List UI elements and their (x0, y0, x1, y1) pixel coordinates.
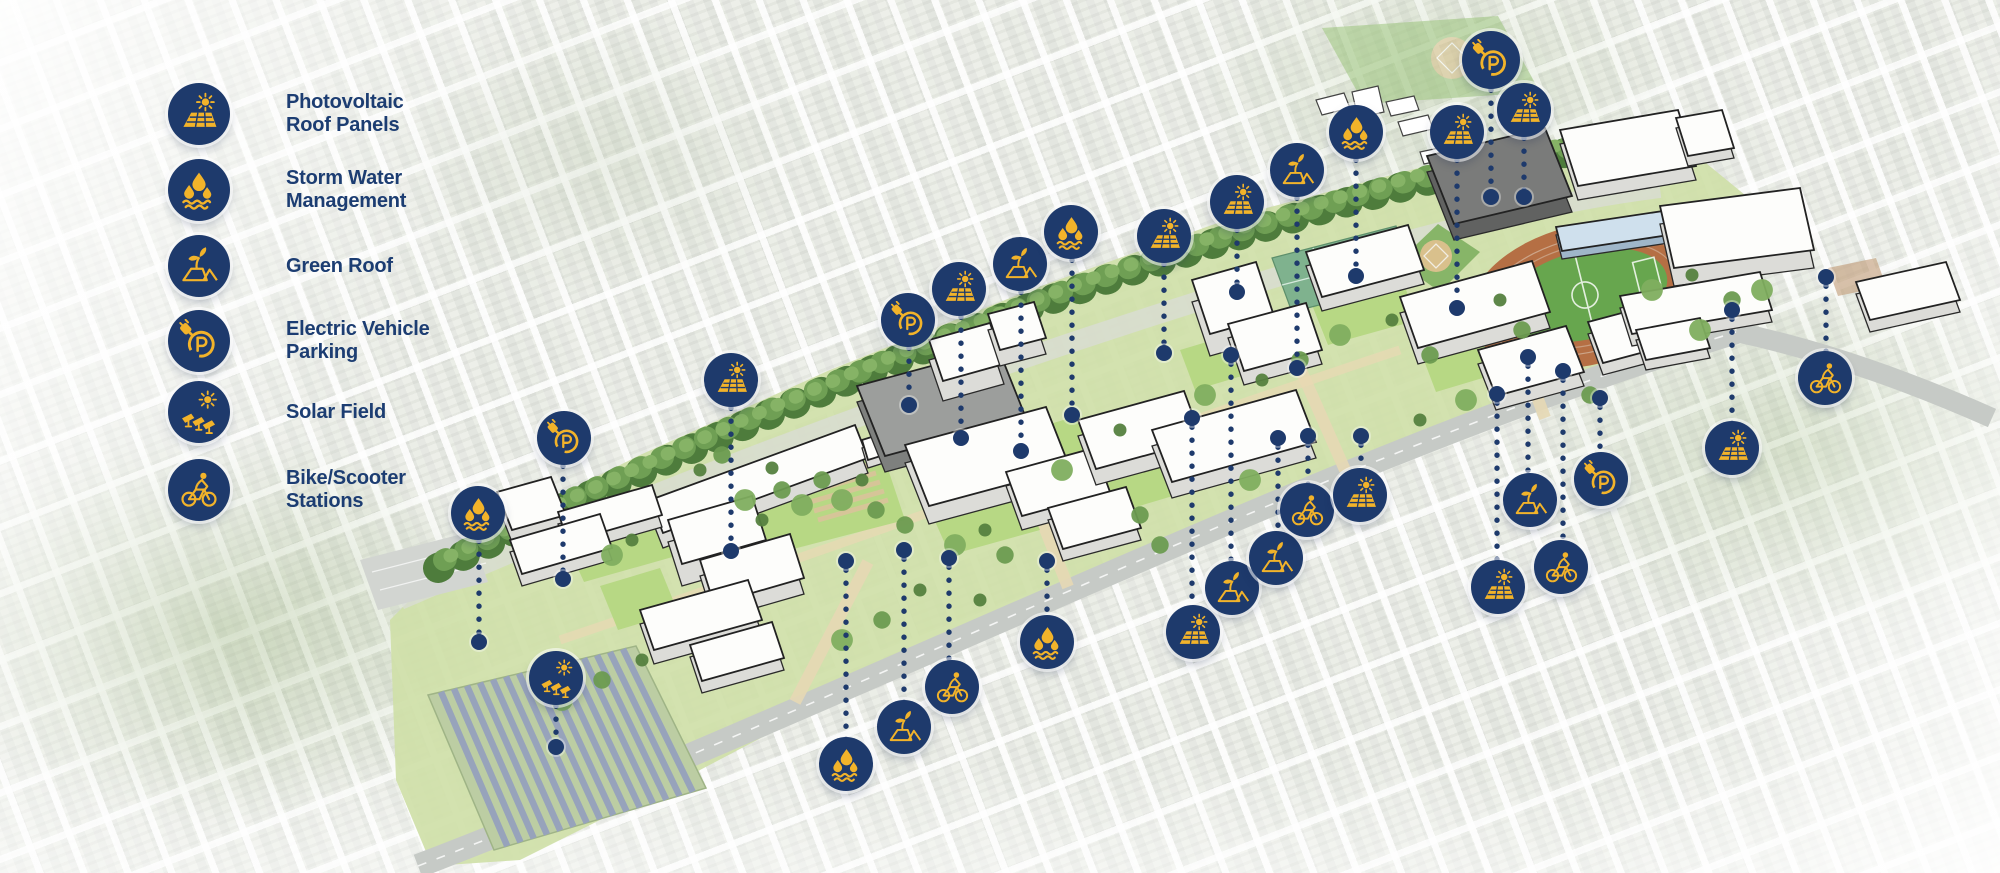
photovoltaic-icon (1341, 476, 1380, 515)
marker-connector (1044, 567, 1050, 617)
marker-connector (1560, 377, 1566, 542)
bike-scooter-icon (1542, 548, 1581, 587)
legend-label-line: Storm Water (286, 167, 406, 190)
green-roof-icon (1257, 539, 1296, 578)
legend-label-line: Bike/Scooter (286, 467, 406, 490)
photovoltaic-icon (1218, 183, 1257, 222)
marker-green-roof (1503, 473, 1557, 527)
solar-field-icon (168, 381, 230, 443)
marker-photovoltaic (1497, 83, 1551, 137)
marker-endpoint-dot (555, 571, 571, 587)
marker-connector (1161, 261, 1167, 347)
marker-storm-water (819, 737, 873, 791)
marker-connector (1521, 135, 1527, 191)
marker-endpoint-dot (1229, 284, 1245, 300)
marker-endpoint-dot (1289, 360, 1305, 376)
marker-connector (1018, 289, 1024, 445)
marker-endpoint-dot (1516, 189, 1532, 205)
marker-endpoint-dot (1592, 390, 1608, 406)
ev-parking-icon (1470, 39, 1512, 81)
marker-photovoltaic (704, 353, 758, 407)
green-roof-icon (885, 708, 924, 747)
ev-parking-icon (1582, 460, 1621, 499)
green-roof-icon (1213, 569, 1252, 608)
green-roof-icon (1001, 245, 1040, 284)
marker-endpoint-dot (1520, 349, 1536, 365)
marker-connector (1234, 227, 1240, 286)
storm-water-icon (1028, 623, 1067, 662)
campus-sustainability-plan: PhotovoltaicRoof Panels Storm WaterManag… (0, 0, 2000, 873)
marker-connector (1294, 195, 1300, 362)
marker-connector (1597, 404, 1603, 454)
marker-endpoint-dot (1039, 553, 1055, 569)
marker-connector (843, 567, 849, 739)
marker-photovoltaic (1137, 209, 1191, 263)
bike-scooter-icon (933, 668, 972, 707)
legend-label: Bike/ScooterStations (286, 467, 406, 513)
bike-scooter-icon (1288, 491, 1327, 530)
marker-bike-scooter (925, 660, 979, 714)
marker-photovoltaic (1210, 175, 1264, 229)
legend-label: Electric VehicleParking (286, 318, 430, 364)
marker-endpoint-dot (1064, 407, 1080, 423)
marker-green-roof (1249, 531, 1303, 585)
marker-photovoltaic (1471, 560, 1525, 614)
marker-bike-scooter (1534, 540, 1588, 594)
legend-label-line: Solar Field (286, 401, 386, 424)
marker-endpoint-dot (548, 739, 564, 755)
marker-endpoint-dot (1724, 302, 1740, 318)
photovoltaic-icon (1479, 568, 1518, 607)
green-roof-icon (168, 235, 230, 297)
green-roof-icon (1278, 151, 1317, 190)
marker-endpoint-dot (723, 543, 739, 559)
marker-connector (553, 703, 559, 741)
marker-endpoint-dot (1353, 428, 1369, 444)
photovoltaic-icon (1174, 613, 1213, 652)
marker-storm-water (451, 486, 505, 540)
ev-parking-icon (545, 419, 584, 458)
legend-item-bike-scooter: Bike/ScooterStations (168, 459, 230, 521)
marker-green-roof (993, 237, 1047, 291)
photovoltaic-icon (1505, 91, 1544, 130)
legend-label: Solar Field (286, 401, 386, 424)
marker-connector (476, 538, 482, 636)
green-roof-icon (1511, 481, 1550, 520)
marker-endpoint-dot (1489, 386, 1505, 402)
marker-photovoltaic (1705, 421, 1759, 475)
marker-connector (901, 556, 907, 702)
photovoltaic-icon (712, 361, 751, 400)
legend-label-line: Parking (286, 341, 430, 364)
marker-endpoint-dot (1300, 428, 1316, 444)
legend-label-line: Photovoltaic (286, 91, 404, 114)
marker-connector (1228, 361, 1234, 563)
legend-label-line: Management (286, 190, 406, 213)
bike-scooter-icon (168, 459, 230, 521)
storm-water-icon (168, 159, 230, 221)
marker-endpoint-dot (838, 553, 854, 569)
storm-water-icon (459, 494, 498, 533)
marker-connector (1823, 283, 1829, 353)
ev-parking-icon (889, 301, 928, 340)
marker-endpoint-dot (1555, 363, 1571, 379)
marker-connector (1454, 157, 1460, 302)
marker-connector (1494, 400, 1500, 562)
photovoltaic-icon (1145, 217, 1184, 256)
marker-storm-water (1020, 615, 1074, 669)
marker-connector (1488, 87, 1494, 191)
legend-label: Storm WaterManagement (286, 167, 406, 213)
marker-endpoint-dot (1156, 345, 1172, 361)
marker-endpoint-dot (1184, 410, 1200, 426)
marker-connector (1275, 444, 1281, 533)
marker-endpoint-dot (471, 634, 487, 650)
marker-storm-water (1044, 205, 1098, 259)
ev-parking-icon (168, 310, 230, 372)
marker-endpoint-dot (1013, 443, 1029, 459)
marker-endpoint-dot (1818, 269, 1834, 285)
marker-connector (958, 314, 964, 432)
photovoltaic-icon (1438, 113, 1477, 152)
legend-label-line: Green Roof (286, 255, 393, 278)
marker-connector (1305, 442, 1311, 485)
bike-scooter-icon (1806, 359, 1845, 398)
marker-endpoint-dot (1483, 189, 1499, 205)
marker-endpoint-dot (1270, 430, 1286, 446)
legend-label: PhotovoltaicRoof Panels (286, 91, 404, 137)
marker-endpoint-dot (941, 550, 957, 566)
marker-endpoint-dot (1449, 300, 1465, 316)
marker-ev-parking (1462, 31, 1520, 89)
legend-label-line: Stations (286, 490, 406, 513)
marker-photovoltaic (932, 262, 986, 316)
marker-bike-scooter (1280, 483, 1334, 537)
marker-endpoint-dot (1348, 268, 1364, 284)
marker-connector (1189, 424, 1195, 607)
legend-label-line: Electric Vehicle (286, 318, 430, 341)
storm-water-icon (1337, 113, 1376, 152)
marker-connector (1069, 257, 1075, 409)
legend-label-line: Roof Panels (286, 114, 404, 137)
marker-solar-field (529, 651, 583, 705)
storm-water-icon (1052, 213, 1091, 252)
marker-ev-parking (881, 293, 935, 347)
marker-bike-scooter (1798, 351, 1852, 405)
marker-connector (728, 405, 734, 545)
marker-storm-water (1329, 105, 1383, 159)
solar-field-icon (537, 659, 576, 698)
legend-item-solar-field: Solar Field (168, 381, 230, 443)
marker-ev-parking (1574, 452, 1628, 506)
marker-green-roof (877, 700, 931, 754)
marker-connector (946, 564, 952, 662)
marker-endpoint-dot (896, 542, 912, 558)
legend-label: Green Roof (286, 255, 393, 278)
legend-item-green-roof: Green Roof (168, 235, 230, 297)
photovoltaic-icon (168, 83, 230, 145)
photovoltaic-icon (940, 270, 979, 309)
marker-connector (1353, 157, 1359, 270)
storm-water-icon (827, 745, 866, 784)
marker-connector (560, 463, 566, 573)
marker-photovoltaic (1430, 105, 1484, 159)
marker-connector (1525, 363, 1531, 475)
marker-endpoint-dot (1223, 347, 1239, 363)
marker-endpoint-dot (953, 430, 969, 446)
photovoltaic-icon (1713, 429, 1752, 468)
marker-endpoint-dot (901, 397, 917, 413)
legend-item-photovoltaic: PhotovoltaicRoof Panels (168, 83, 230, 145)
marker-connector (1729, 316, 1735, 423)
legend-item-ev-parking: Electric VehicleParking (168, 310, 230, 372)
marker-green-roof (1270, 143, 1324, 197)
marker-photovoltaic (1166, 605, 1220, 659)
marker-photovoltaic (1333, 468, 1387, 522)
marker-connector (1358, 442, 1364, 470)
legend-item-storm-water: Storm WaterManagement (168, 159, 230, 221)
marker-ev-parking (537, 411, 591, 465)
marker-connector (906, 345, 912, 399)
